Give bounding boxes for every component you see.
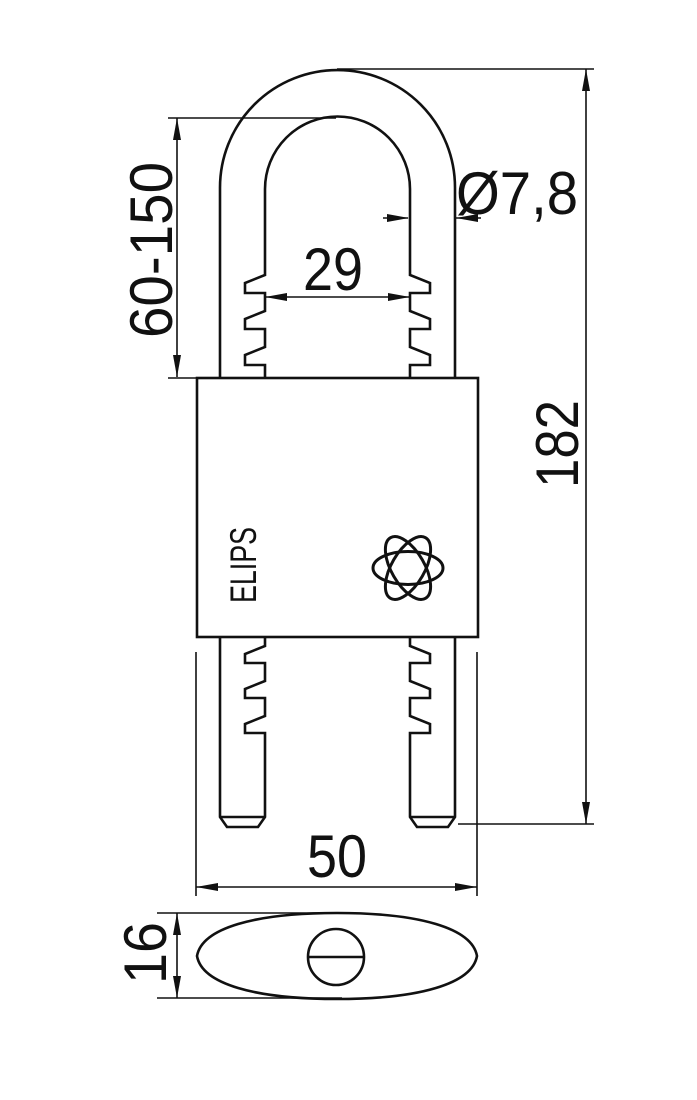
dim-inner-width: 29 (265, 236, 410, 303)
drawing-canvas: ELIPS 60-150 Ø7,8 (0, 0, 697, 1100)
dim-value-total-height: 182 (524, 400, 591, 488)
dim-value-inner-width: 29 (303, 236, 363, 303)
right-leg-lower (410, 637, 455, 827)
front-view: ELIPS (197, 70, 478, 827)
atom-orbit-1 (373, 552, 443, 585)
atom-logo-icon (373, 529, 443, 606)
dim-shackle-diameter: Ø7,8 (383, 160, 578, 227)
arrow-left (196, 883, 218, 891)
brand-text: ELIPS (223, 527, 264, 603)
arrow-right (387, 214, 409, 222)
arrow-left (265, 293, 287, 301)
dim-value-shackle-clearance: 60-150 (118, 162, 185, 338)
dimension-annotations: 60-150 Ø7,8 29 182 (112, 69, 594, 998)
dim-value-body-width: 50 (307, 823, 367, 890)
dim-value-shackle-diameter: Ø7,8 (456, 160, 578, 227)
dim-value-body-depth: 16 (112, 922, 179, 984)
left-leg-lower (220, 637, 265, 827)
arrow-up (582, 69, 590, 91)
arrow-right (455, 883, 477, 891)
arrow-up (173, 118, 181, 140)
dim-body-width: 50 (196, 652, 477, 896)
bottom-view (197, 913, 477, 999)
padlock-technical-drawing: ELIPS 60-150 Ø7,8 (0, 0, 697, 1100)
arrow-down (582, 802, 590, 824)
arrow-down (173, 355, 181, 377)
arrow-right (388, 293, 410, 301)
